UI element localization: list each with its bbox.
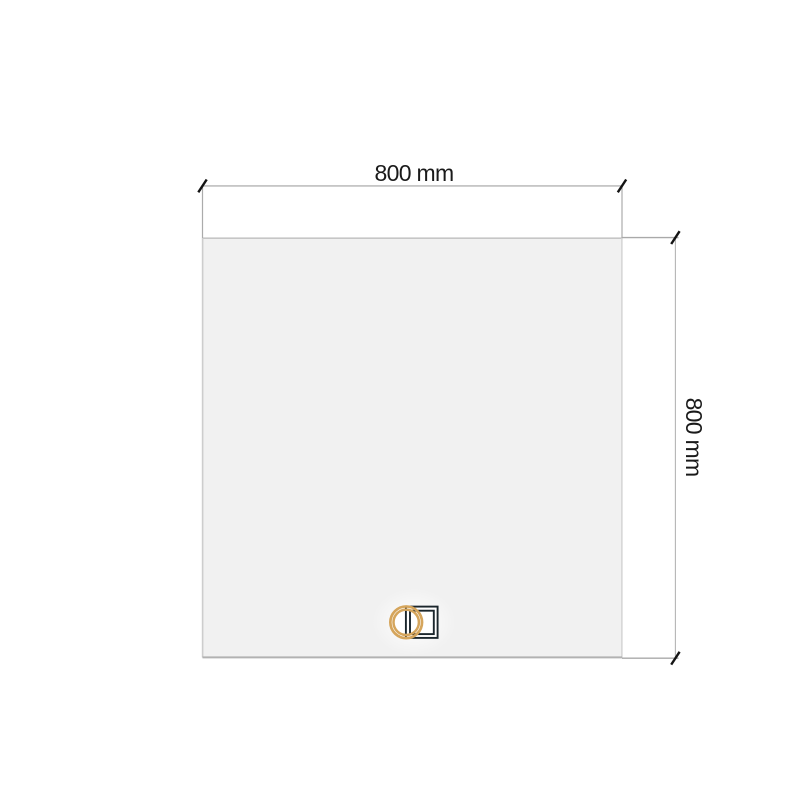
svg-text:800 mm: 800 mm bbox=[681, 398, 707, 477]
svg-text:800 mm: 800 mm bbox=[375, 160, 454, 186]
